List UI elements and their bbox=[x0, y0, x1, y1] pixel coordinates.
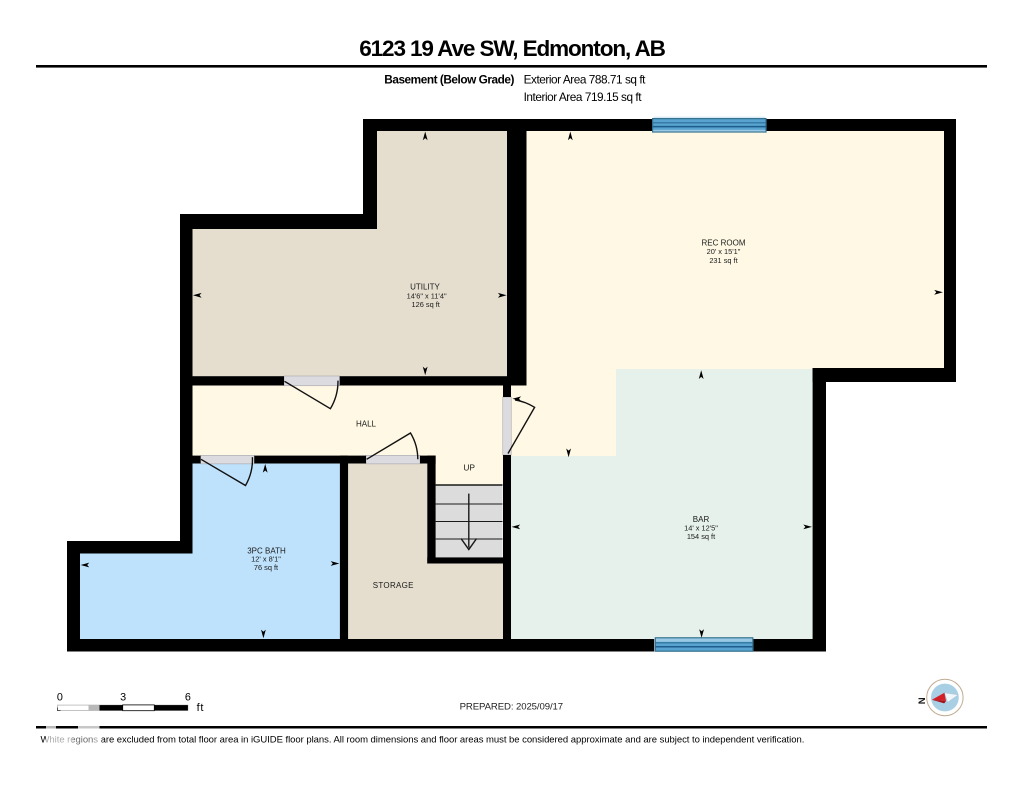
svg-text:76 sq ft: 76 sq ft bbox=[254, 563, 278, 572]
svg-text:STORAGE: STORAGE bbox=[373, 581, 414, 590]
svg-text:BAR: BAR bbox=[693, 515, 710, 524]
svg-text:126 sq ft: 126 sq ft bbox=[412, 300, 440, 309]
svg-text:UTILITY: UTILITY bbox=[410, 283, 440, 292]
svg-text:20' x 15'1": 20' x 15'1" bbox=[707, 247, 741, 256]
svg-text:ft: ft bbox=[197, 702, 205, 714]
svg-text:14' x 12'5": 14' x 12'5" bbox=[684, 524, 718, 533]
svg-text:REC ROOM: REC ROOM bbox=[702, 238, 746, 247]
svg-text:Exterior Area 788.71 sq ft: Exterior Area 788.71 sq ft bbox=[524, 72, 647, 86]
svg-text:N: N bbox=[917, 697, 928, 704]
svg-text:154 sq ft: 154 sq ft bbox=[687, 532, 715, 541]
svg-text:6: 6 bbox=[185, 692, 191, 704]
svg-text:UP: UP bbox=[463, 463, 475, 473]
svg-text:0: 0 bbox=[57, 692, 63, 704]
svg-text:PREPARED: 2025/09/17: PREPARED: 2025/09/17 bbox=[460, 702, 563, 713]
svg-text:HALL: HALL bbox=[356, 419, 377, 428]
svg-text:6123 19 Ave SW, Edmonton, AB: 6123 19 Ave SW, Edmonton, AB bbox=[359, 36, 665, 61]
svg-text:3: 3 bbox=[120, 692, 126, 704]
svg-text:White regions are excluded fro: White regions are excluded from total fl… bbox=[41, 735, 805, 746]
svg-text:Basement (Below Grade): Basement (Below Grade) bbox=[384, 72, 514, 86]
svg-text:Interior Area 719.15 sq ft: Interior Area 719.15 sq ft bbox=[524, 90, 643, 104]
svg-text:231 sq ft: 231 sq ft bbox=[709, 256, 737, 265]
